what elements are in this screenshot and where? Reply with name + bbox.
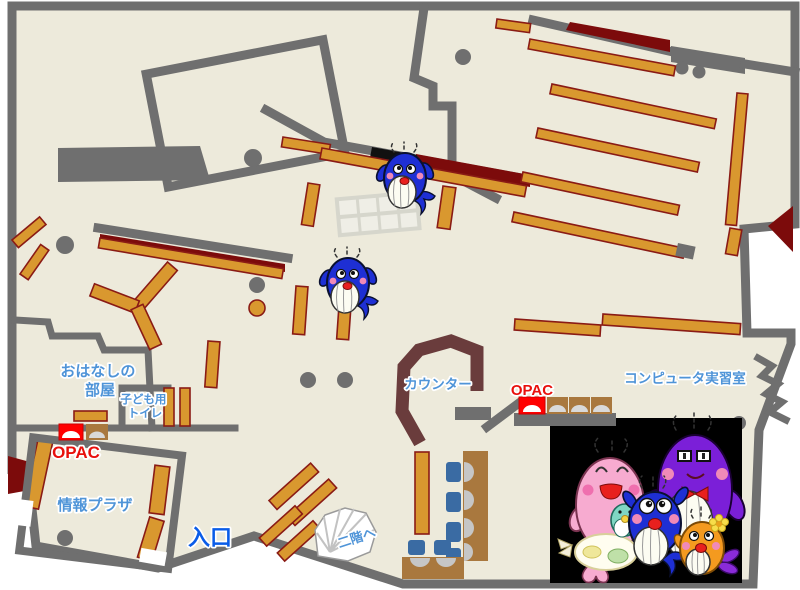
label-opac-left: OPAC	[52, 443, 100, 462]
floor-map: おはなしの 部屋 子ども用 トイレ OPAC 情報プラザ 入口 二階へ カウンタ…	[0, 0, 800, 590]
library-floor-map-page: おはなしの 部屋 子ども用 トイレ OPAC 情報プラザ 入口 二階へ カウンタ…	[0, 0, 800, 590]
label-counter: カウンター	[404, 377, 472, 392]
label-info-plaza: 情報プラザ	[57, 496, 132, 514]
reading-desk-vertical	[446, 451, 488, 566]
wall-block	[58, 146, 210, 182]
label-entrance: 入口	[188, 525, 232, 550]
label-opac-right: OPAC	[511, 382, 553, 399]
opac-station-right	[514, 397, 616, 426]
label-computer-room: コンピュータ実習室	[624, 370, 746, 386]
opac-station-left	[59, 424, 108, 440]
